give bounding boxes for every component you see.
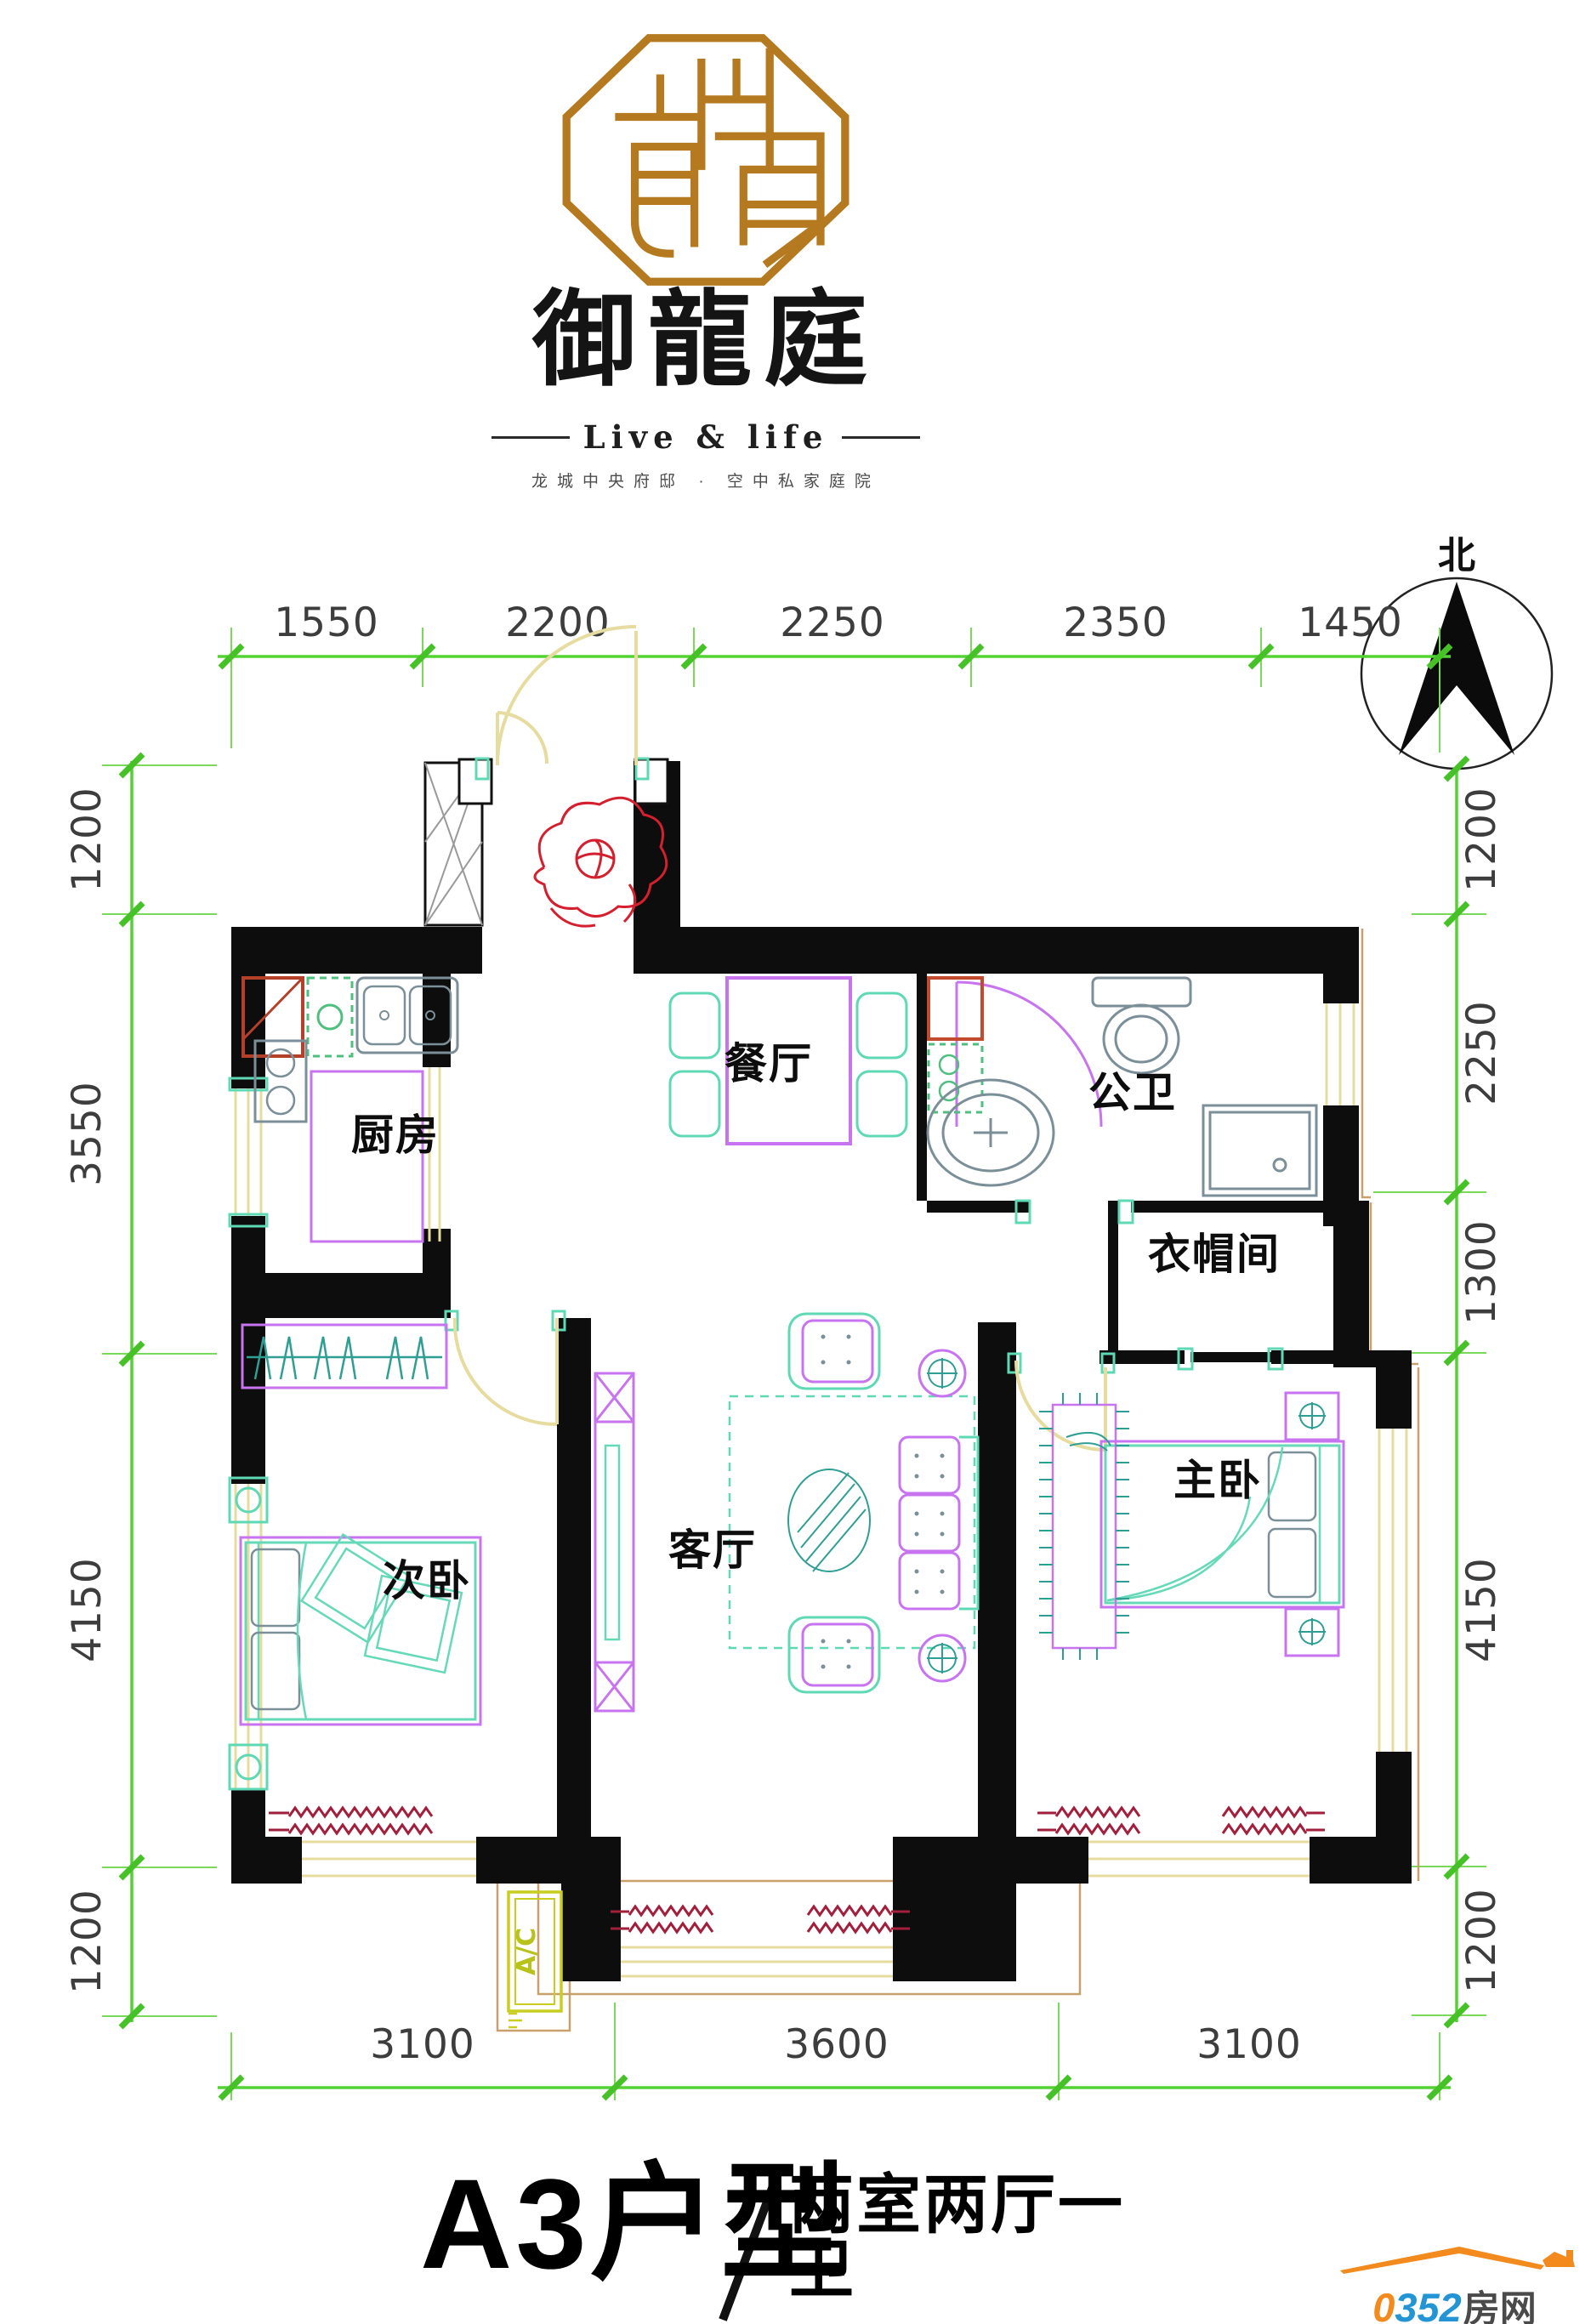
roof-icon	[1332, 2242, 1578, 2276]
dim-right-2: 1300	[1458, 1219, 1505, 1325]
master-bedroom-furniture	[1039, 1393, 1344, 1660]
dim-top-2: 2250	[780, 599, 885, 646]
north-label: 北	[1438, 534, 1475, 577]
dim-top-0: 1550	[274, 599, 379, 646]
dimension-bottom: 3100 3600 3100	[218, 2003, 1451, 2100]
dim-top-3: 2350	[1063, 599, 1168, 646]
unit-summary: 两室两厅一卫 建筑面积：102.87平米	[789, 2173, 1189, 2324]
dim-right-4: 1200	[1458, 1888, 1505, 1993]
dimension-left: 1200 3550 4150 1200	[64, 754, 217, 2027]
living-room-furniture	[595, 1314, 978, 1711]
dim-left-3: 1200	[64, 1889, 111, 1994]
dim-bottom-1: 3600	[784, 2021, 889, 2068]
dim-bottom-0: 3100	[370, 2021, 475, 2068]
second-bedroom-furniture	[241, 1325, 480, 1725]
dim-right-0: 1200	[1458, 787, 1505, 892]
dim-top-4: 1450	[1298, 599, 1403, 646]
room-label-second-bedroom: 次卧	[383, 1556, 471, 1605]
room-label-dining: 餐厅	[724, 1039, 813, 1088]
ac-label: A/C	[512, 1928, 542, 1975]
dim-left-2: 4150	[64, 1557, 111, 1662]
dim-left-0: 1200	[64, 787, 111, 892]
floorplan-page: 御龍庭 Live & life 龙城中央府邸 · 空中私家庭院 北	[0, 0, 1591, 2324]
room-label-kitchen: 厨房	[351, 1111, 440, 1160]
room-label-bathroom: 公卫	[1088, 1068, 1177, 1117]
ac-unit: A/C	[509, 1892, 561, 2027]
floor-plan-drawing: 北 1550 2200 2250 2350 1450	[0, 0, 1591, 2324]
dim-right-3: 4150	[1458, 1557, 1505, 1662]
dim-bottom-2: 3100	[1196, 2021, 1302, 2068]
dim-right-1: 2250	[1458, 1000, 1505, 1105]
walls	[231, 761, 1412, 1981]
radiators	[269, 1808, 1325, 1932]
room-label-living-room: 客厅	[668, 1526, 757, 1575]
room-label-cloakroom: 衣帽间	[1148, 1230, 1281, 1279]
watermark-suffix: 房网	[1463, 2280, 1537, 2324]
room-label-master-bedroom: 主卧	[1173, 1456, 1262, 1505]
dim-left-1: 3550	[64, 1081, 111, 1186]
unit-name: A3户型	[420, 2160, 852, 2287]
north-indicator: 北	[1361, 534, 1552, 769]
room-labels: 厨房 餐厅 公卫 衣帽间 次卧 客厅 主卧	[351, 1039, 1281, 1605]
watermark-number: 0352	[1372, 2284, 1462, 2324]
watermark-logo: 0352 房网 www.0352fang.com	[1325, 2242, 1584, 2324]
unit-layout: 两室两厅一卫	[789, 2173, 1189, 2303]
dim-top-1: 2200	[505, 599, 611, 646]
dimension-top: 1550 2200 2250 2350 1450	[218, 599, 1451, 753]
